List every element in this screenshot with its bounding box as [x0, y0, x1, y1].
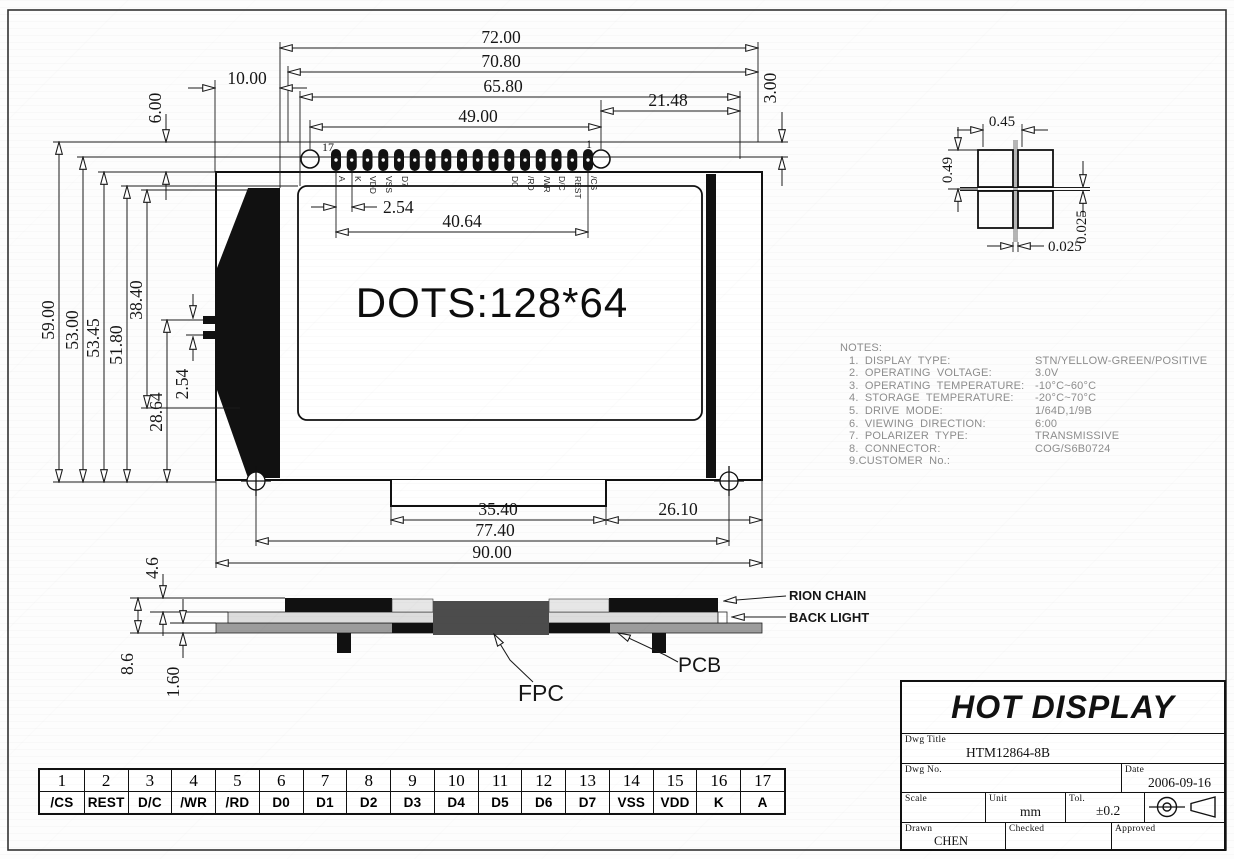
dim-49: 49.00 — [458, 106, 498, 126]
dim-40-64: 40.64 — [442, 211, 482, 231]
pad-label: /WR — [542, 176, 552, 193]
connector-pad-dot — [571, 158, 574, 161]
dim-53-45: 53.45 — [83, 318, 103, 358]
dim-53: 53.00 — [62, 310, 82, 350]
note-label: 4. STORAGE TEMPERATURE: — [849, 392, 1035, 405]
dim-21-48: 21.48 — [648, 90, 688, 110]
note-item: 6. VIEWING DIRECTION:6:00 — [849, 418, 1226, 431]
dim-8-6: 8.6 — [117, 653, 137, 675]
dim-2-54-pitch: 2.54 — [383, 197, 414, 217]
pin-number-cell: 13 — [565, 770, 609, 791]
lcd-glass-left — [285, 598, 392, 612]
dim-38-4: 38.40 — [126, 280, 146, 320]
pin-number-cell: 9 — [390, 770, 434, 791]
rion-chain-label: RION CHAIN — [789, 588, 866, 603]
pad-label: D7 — [400, 176, 410, 187]
pin-name-cell: D3 — [390, 791, 434, 813]
note-item: 3. OPERATING TEMPERATURE:-10°C~60°C — [849, 380, 1226, 393]
solder-left — [392, 623, 433, 633]
pin-number-cell: 5 — [215, 770, 259, 791]
note-value: -20°C~70°C — [1035, 392, 1096, 405]
dim-72: 72.00 — [481, 27, 521, 47]
pad-label: REST — [573, 176, 583, 199]
dim-70-8: 70.80 — [481, 51, 521, 71]
dim-51-8: 51.80 — [106, 325, 126, 365]
connector-pad-dot — [397, 158, 400, 161]
pin1-number: 1 — [586, 137, 592, 151]
signature-row: Drawn CHEN Checked Approved — [902, 822, 1224, 849]
connector-pad-dot — [586, 158, 589, 161]
note-item: 1. DISPLAY TYPE:STN/YELLOW-GREEN/POSITIV… — [849, 355, 1226, 368]
note-item: 4. STORAGE TEMPERATURE:-20°C~70°C — [849, 392, 1226, 405]
checked-label: Checked — [1009, 824, 1044, 834]
pcb-label: PCB — [678, 654, 721, 677]
pin-number-cell: 2 — [84, 770, 128, 791]
pin-number-cell: 16 — [696, 770, 740, 791]
connector-pad-dot — [366, 158, 369, 161]
note-value: -10°C~60°C — [1035, 380, 1096, 393]
pin-name-cell: D7 — [565, 791, 609, 813]
tol-label: Tol. — [1069, 794, 1085, 804]
date-value: 2006-09-16 — [1148, 775, 1211, 791]
unit-label: Unit — [989, 794, 1007, 804]
dim-2-54-left: 2.54 — [172, 368, 192, 399]
pin-number-cell: 11 — [478, 770, 522, 791]
solder-right — [549, 623, 610, 633]
dim-77-4: 77.40 — [475, 520, 515, 540]
pin-number-cell: 6 — [259, 770, 303, 791]
connector-pad-dot — [555, 158, 558, 161]
note-item: 7. POLARIZER TYPE:TRANSMISSIVE — [849, 430, 1226, 443]
pin-number-cell: 14 — [609, 770, 653, 791]
note-label: 2. OPERATING VOLTAGE: — [849, 367, 1035, 380]
pad-label: /CS — [589, 176, 599, 191]
note-label: 7. POLARIZER TYPE: — [849, 430, 1035, 443]
back-light-label: BACK LIGHT — [789, 610, 869, 625]
title-block: HOT DISPLAY Dwg Title HTM12864-8B Dwg No… — [900, 680, 1226, 851]
connector-pad-dot — [429, 158, 432, 161]
dim-28-64: 28.64 — [146, 392, 166, 432]
pin-number-cell: 17 — [740, 770, 784, 791]
pad-label: VSS — [384, 176, 394, 193]
notes-heading: NOTES: — [840, 342, 1226, 355]
pin-name-cell: K — [696, 791, 740, 813]
scale-unit-tol-row: Scale Unit mm Tol. ±0.2 — [902, 792, 1224, 822]
pin-number-cell: 7 — [303, 770, 347, 791]
pin-number-cell: 1 — [40, 770, 84, 791]
note-label: 3. OPERATING TEMPERATURE: — [849, 380, 1035, 393]
pad-label: /RD — [526, 176, 536, 191]
dim-4-6: 4.6 — [142, 557, 162, 579]
dwg-title-row: Dwg Title HTM12864-8B — [902, 733, 1224, 763]
note-item: 8. CONNECTOR:COG/S6B0724 — [849, 443, 1226, 456]
connector-pad-dot — [492, 158, 495, 161]
pin-name-cell: /CS — [40, 791, 84, 813]
pin-name-cell: D6 — [521, 791, 565, 813]
connector-pad-dot — [350, 158, 353, 161]
dim-0-45: 0.45 — [989, 114, 1015, 130]
dim-90: 90.00 — [472, 542, 512, 562]
pin-name-cell: /RD — [215, 791, 259, 813]
pad-label: K — [353, 176, 363, 182]
note-item: 2. OPERATING VOLTAGE:3.0V — [849, 367, 1226, 380]
pin-number-cell: 12 — [521, 770, 565, 791]
fpc-label: FPC — [518, 680, 564, 706]
pin-name-cell: VSS — [609, 791, 653, 813]
notes-block: NOTES: 1. DISPLAY TYPE:STN/YELLOW-GREEN/… — [840, 342, 1226, 468]
dim-3: 3.00 — [760, 72, 780, 103]
connector-pad-dot — [413, 158, 416, 161]
connector-pad-dot — [445, 158, 448, 161]
dim-35-4: 35.40 — [478, 499, 518, 519]
note-label: 1. DISPLAY TYPE: — [849, 355, 1035, 368]
pin-number-cell: 8 — [346, 770, 390, 791]
connector-pad-dot — [508, 158, 511, 161]
pin-number-cell: 3 — [128, 770, 172, 791]
dim-26-1: 26.10 — [658, 499, 698, 519]
backlight-end-cap — [718, 612, 727, 623]
dwg-no-row: Dwg No. Date 2006-09-16 — [902, 763, 1224, 792]
dim-6: 6.00 — [145, 92, 165, 123]
pin-name-cell: D4 — [434, 791, 478, 813]
pin-number-cell: 15 — [653, 770, 697, 791]
drawn-label: Drawn — [905, 824, 932, 834]
display-dots-text: DOTS:128*64 — [356, 279, 628, 326]
pin-assignment-table: 1234567891011121314151617/CSRESTD/C/WR/R… — [38, 768, 786, 815]
note-label: 9.CUSTOMER No.: — [849, 455, 1035, 468]
note-label: 6. VIEWING DIRECTION: — [849, 418, 1035, 431]
connector-pad-dot — [382, 158, 385, 161]
note-item: 5. DRIVE MODE:1/64D,1/9B — [849, 405, 1226, 418]
pin-name-cell: D1 — [303, 791, 347, 813]
scale-label: Scale — [905, 794, 927, 804]
note-value: 1/64D,1/9B — [1035, 405, 1092, 418]
pin-name-cell: VDD — [653, 791, 697, 813]
projection-symbol — [1145, 793, 1221, 821]
lcd-glass-right — [609, 598, 718, 612]
pin-number-cell: 4 — [171, 770, 215, 791]
pin-name-cell: D0 — [259, 791, 303, 813]
dim-0-49: 0.49 — [940, 157, 956, 183]
pin1-circle — [592, 150, 610, 168]
approved-label: Approved — [1115, 824, 1155, 834]
glass-gap-right — [549, 599, 609, 612]
pad-label: VDD — [368, 176, 378, 194]
connector-pads — [331, 149, 593, 171]
dot-pitch-detail — [960, 140, 1090, 242]
dwg-no-label: Dwg No. — [905, 765, 942, 775]
note-value: STN/YELLOW-GREEN/POSITIVE — [1035, 355, 1207, 368]
note-value: COG/S6B0724 — [1035, 443, 1111, 456]
unit-value: mm — [1020, 804, 1041, 820]
note-item: 9.CUSTOMER No.: — [849, 455, 1226, 468]
connector-pad-dot — [539, 158, 542, 161]
pin-name-cell: D5 — [478, 791, 522, 813]
connector-pad-dot — [476, 158, 479, 161]
note-label: 5. DRIVE MODE: — [849, 405, 1035, 418]
right-seal-bar — [706, 174, 716, 478]
pin17-circle — [301, 150, 319, 168]
dim-10: 10.00 — [227, 68, 267, 88]
mount-pin-left — [337, 633, 351, 653]
pad-label: D0 — [510, 176, 520, 187]
pin-number-cell: 10 — [434, 770, 478, 791]
drawing-sheet: DOTS:128*64 17 1 A K VDD VSS D7 D0 /RD /… — [0, 0, 1234, 859]
left-tab-lower — [203, 331, 218, 339]
pin-name-cell: D/C — [128, 791, 172, 813]
fpc-block — [433, 601, 549, 635]
date-label: Date — [1125, 765, 1144, 775]
top-view: DOTS:128*64 17 1 A K VDD VSS D7 D0 /RD /… — [203, 137, 762, 506]
connector-pad-dot — [460, 158, 463, 161]
pad-label: A — [337, 176, 347, 182]
dim-1-6: 1.60 — [163, 666, 183, 697]
dim-0-025-horizontal: 0.025 — [1048, 239, 1082, 255]
side-view: RION CHAIN BACK LIGHT PCB FPC — [216, 588, 869, 706]
tol-value: ±0.2 — [1096, 803, 1120, 819]
pin-name-cell: A — [740, 791, 784, 813]
connector-pad-dot — [334, 158, 337, 161]
note-value: 3.0V — [1035, 367, 1058, 380]
note-value: TRANSMISSIVE — [1035, 430, 1119, 443]
pad-label: D/C — [557, 176, 567, 191]
pin-name-cell: /WR — [171, 791, 215, 813]
dwg-title-value: HTM12864-8B — [966, 745, 1050, 761]
dwg-title-label: Dwg Title — [905, 735, 946, 745]
glass-gap-left — [392, 599, 433, 612]
connector-pad-dot — [523, 158, 526, 161]
left-tab-upper — [203, 316, 218, 324]
note-value: 6:00 — [1035, 418, 1057, 431]
note-label: 8. CONNECTOR: — [849, 443, 1035, 456]
dim-65-8: 65.80 — [483, 76, 523, 96]
drawn-value: CHEN — [934, 834, 968, 849]
pin-name-cell: D2 — [346, 791, 390, 813]
company-name: HOT DISPLAY — [902, 682, 1224, 733]
dim-59: 59.00 — [38, 300, 58, 340]
pin-name-cell: REST — [84, 791, 128, 813]
